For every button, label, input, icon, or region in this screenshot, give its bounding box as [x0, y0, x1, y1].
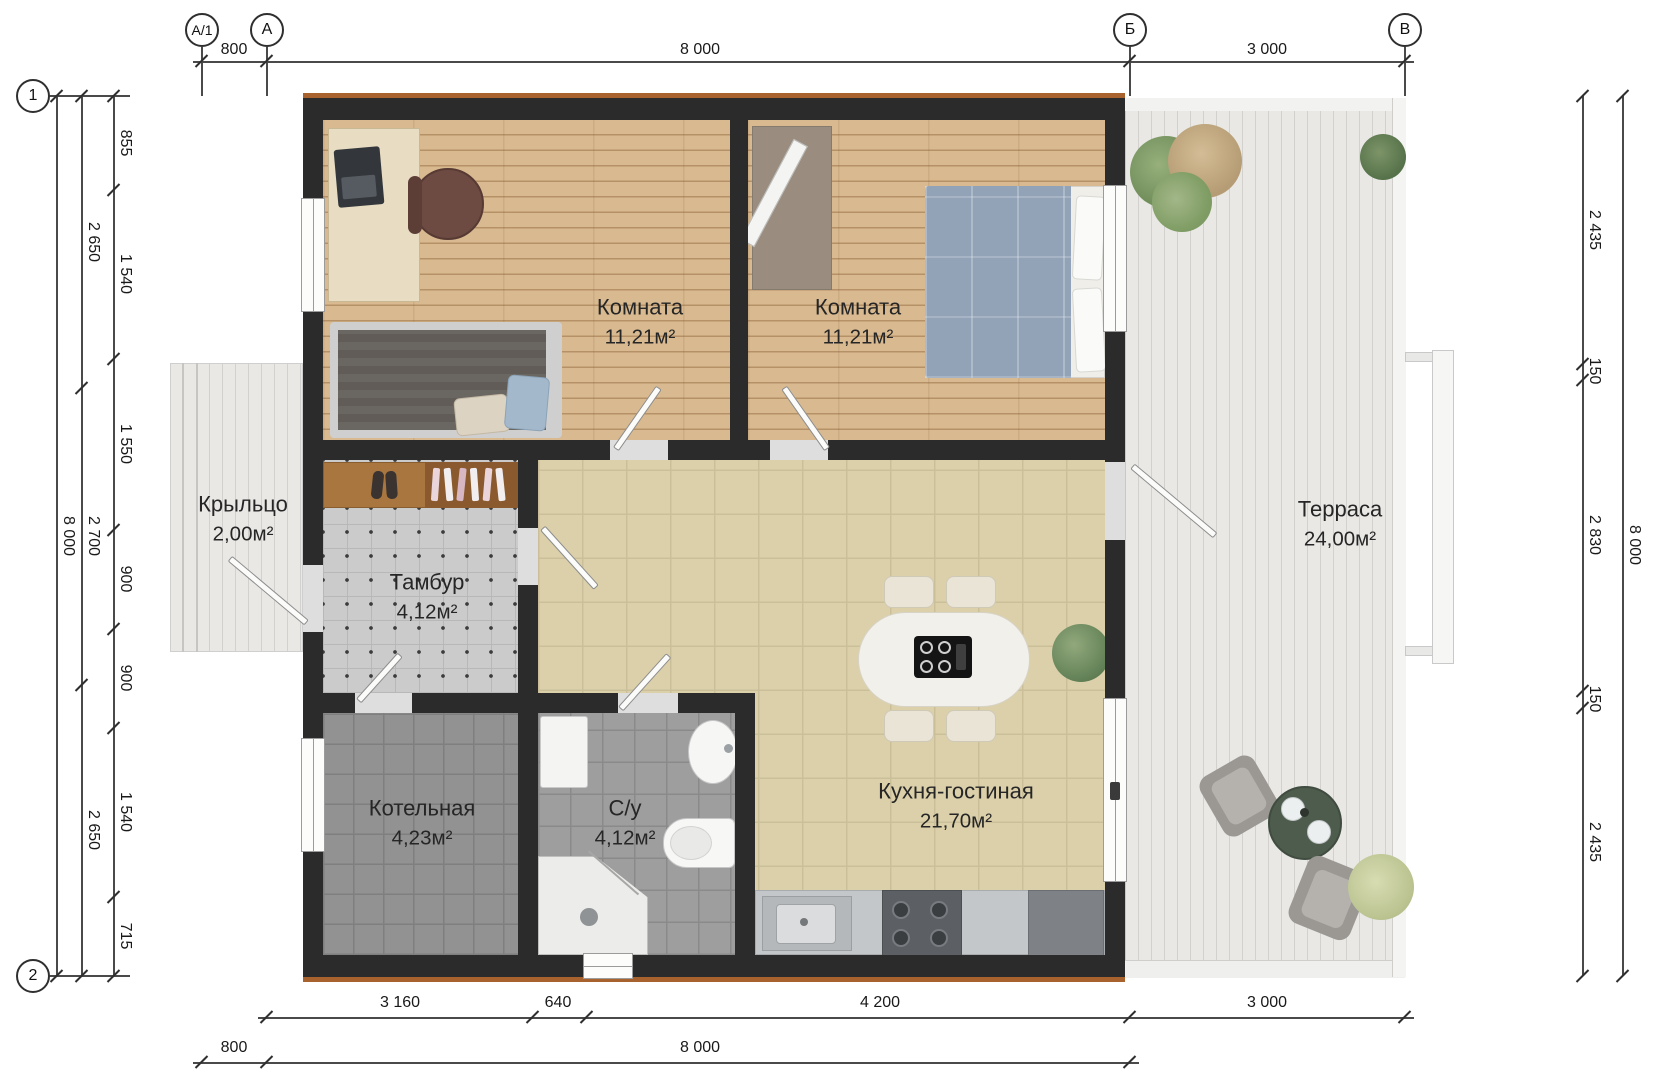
- terrace-railing: [1432, 350, 1454, 664]
- wall-exterior-right: [1105, 540, 1125, 698]
- dim-label: 1 540: [116, 792, 134, 832]
- room-label-kitchen: Кухня-гостиная 21,70м²: [878, 776, 1034, 835]
- plant-kitchen: [1052, 624, 1110, 682]
- dim-line-bottom-1: [258, 1017, 1414, 1019]
- dim-label: 2 700: [84, 516, 102, 556]
- wall-exterior-top: [303, 98, 1125, 120]
- axis-label: В: [1400, 21, 1411, 39]
- cooktop-controls: [956, 644, 966, 670]
- terrace-trim-bottom: [1125, 960, 1405, 978]
- dim-label: 800: [221, 1039, 248, 1057]
- counter-cabinet: [1028, 890, 1104, 957]
- window-room2: [1103, 185, 1127, 332]
- shower-head: [580, 908, 598, 926]
- dim-line-left-inner: [113, 96, 115, 976]
- dim-label: 4 200: [860, 994, 900, 1012]
- axis-label: А/1: [191, 22, 212, 38]
- dim-label: 640: [545, 994, 572, 1012]
- railing-connector: [1405, 352, 1434, 362]
- axis-line: [1129, 47, 1131, 96]
- room-label-room1: Комната 11,21м²: [597, 292, 683, 351]
- plant-terrace-large: [1152, 172, 1212, 232]
- dim-label: 8 000: [680, 1039, 720, 1057]
- axis-label: Б: [1125, 21, 1136, 39]
- dim-label: 1 540: [116, 254, 134, 294]
- room-name: Комната: [815, 292, 901, 323]
- dim-label: 2 650: [84, 810, 102, 850]
- axis-bubble-2: 2: [16, 959, 50, 993]
- axis-bubble-a: А: [250, 13, 284, 47]
- stove: [882, 890, 962, 957]
- wall-bedrooms-bottom: [323, 440, 610, 460]
- slider-handle-icon: [1110, 782, 1120, 800]
- axis-label: 2: [29, 967, 38, 985]
- room-label-porch: Крыльцо 2,00м²: [198, 489, 288, 548]
- room-label-terrace: Терраса 24,00м²: [1298, 494, 1382, 553]
- dim-line-bottom-2: [193, 1062, 1139, 1064]
- laptop-keyboard: [341, 175, 377, 200]
- plant-terrace-small: [1360, 134, 1406, 180]
- stove-burner: [892, 929, 910, 947]
- burner: [920, 641, 933, 654]
- room-area: 11,21м²: [815, 323, 901, 352]
- wall-bedroom-divider: [730, 120, 748, 440]
- wall-exterior-bottom: [633, 955, 1125, 977]
- dim-label: 2 435: [1585, 210, 1603, 250]
- room-area: 24,00м²: [1298, 525, 1382, 554]
- dim-line-left-outer: [56, 96, 58, 976]
- dim-label: 150: [1585, 686, 1603, 713]
- stove-burner: [930, 901, 948, 919]
- window-boiler: [301, 738, 325, 852]
- room-area: 4,12м²: [390, 598, 465, 627]
- dim-label: 3 160: [380, 994, 420, 1012]
- wall-tambour-right: [518, 585, 538, 693]
- wall-exterior-bottom: [303, 955, 583, 977]
- office-chair-back: [408, 176, 422, 234]
- dim-label: 2 830: [1585, 515, 1603, 555]
- room-name: С/у: [595, 793, 656, 824]
- bed-pillow: [1072, 287, 1106, 372]
- dim-label: 3 000: [1247, 41, 1287, 59]
- wall-tambour-right: [518, 460, 538, 528]
- room-name: Комната: [597, 292, 683, 323]
- dim-line-left-mid: [81, 96, 83, 976]
- dim-label: 900: [116, 566, 134, 593]
- room-area: 11,21м²: [597, 323, 683, 352]
- axis-line: [201, 47, 203, 96]
- dining-chair: [946, 576, 996, 608]
- dim-label: 1 550: [116, 424, 134, 464]
- axis-line: [50, 95, 130, 97]
- room-label-tambour: Тамбур 4,12м²: [390, 567, 465, 626]
- room-label-room2: Комната 11,21м²: [815, 292, 901, 351]
- table-plate: [1307, 820, 1331, 844]
- room-name: Терраса: [1298, 494, 1382, 525]
- room-area: 4,23м²: [369, 824, 476, 853]
- axis-bubble-a1: А/1: [185, 13, 219, 47]
- room-name: Крыльцо: [198, 489, 288, 520]
- dining-chair: [884, 576, 934, 608]
- dim-label: 800: [221, 41, 248, 59]
- wall-boiler-bath-divider: [518, 713, 538, 955]
- dim-label: 900: [116, 665, 134, 692]
- wall-bath-right: [735, 693, 755, 955]
- wall-exterior-left: [303, 632, 323, 738]
- window-bath: [583, 953, 633, 979]
- room-name: Кухня-гостиная: [878, 776, 1034, 807]
- railing-connector: [1405, 646, 1434, 656]
- dim-label: 8 000: [680, 41, 720, 59]
- dim-line-right-inner: [1582, 96, 1584, 976]
- room-area: 2,00м²: [198, 520, 288, 549]
- burner: [938, 641, 951, 654]
- terrace-trim-right: [1392, 98, 1406, 977]
- dim-label: 8 000: [59, 516, 77, 556]
- axis-label: 1: [29, 87, 38, 105]
- axis-line: [266, 47, 268, 96]
- axis-bubble-1: 1: [16, 79, 50, 113]
- burner: [920, 660, 933, 673]
- dim-label: 2 435: [1585, 822, 1603, 862]
- window-room1: [301, 198, 325, 312]
- axis-bubble-v: В: [1388, 13, 1422, 47]
- stove-burner: [930, 929, 948, 947]
- wall-utility-top: [412, 693, 618, 713]
- pillow-beige: [453, 393, 511, 436]
- porch-step-line: [182, 363, 184, 652]
- terrace-table: [1268, 786, 1342, 860]
- floor-plan: А/1 А Б В 1 2 800 8 000 3 000 8 000 2 65…: [0, 0, 1659, 1080]
- washing-machine: [540, 716, 588, 788]
- wall-exterior-left: [303, 98, 323, 198]
- siding-trim-bottom: [303, 977, 1125, 982]
- axis-line: [50, 975, 130, 977]
- wall-exterior-left: [303, 312, 323, 565]
- wall-bedrooms-bottom: [668, 440, 770, 460]
- shoes: [385, 471, 398, 500]
- axis-line: [1404, 47, 1406, 96]
- room-label-bath: С/у 4,12м²: [595, 793, 656, 852]
- room-name: Тамбур: [390, 567, 465, 598]
- dim-label: 3 000: [1247, 994, 1287, 1012]
- stove-burner: [892, 901, 910, 919]
- dining-chair: [946, 710, 996, 742]
- threshold-tambour-kitchen: [518, 528, 538, 585]
- wall-exterior-right: [1105, 332, 1125, 462]
- axis-bubble-b: Б: [1113, 13, 1147, 47]
- plant-terrace-bottom: [1348, 854, 1414, 920]
- burner: [938, 660, 951, 673]
- wall-exterior-right: [1105, 98, 1125, 185]
- room-area: 21,70м²: [878, 807, 1034, 836]
- wall-bedrooms-bottom: [828, 440, 1105, 460]
- sink-drain: [800, 918, 808, 926]
- dining-chair: [884, 710, 934, 742]
- wall-utility-top: [323, 693, 355, 713]
- faucet: [724, 744, 733, 753]
- dim-line-right-outer: [1622, 96, 1624, 976]
- axis-label: А: [262, 21, 273, 39]
- dim-label: 8 000: [1625, 525, 1643, 565]
- dim-label: 715: [116, 923, 134, 950]
- dim-label: 150: [1585, 358, 1603, 385]
- bed-pillow: [1072, 195, 1106, 280]
- room-area: 4,12м²: [595, 824, 656, 853]
- bed-blanket: [925, 186, 1071, 378]
- room-label-boiler: Котельная 4,23м²: [369, 793, 476, 852]
- threshold-terrace-door: [1105, 462, 1125, 540]
- terrace-trim-top: [1125, 98, 1405, 111]
- dim-label: 855: [116, 130, 134, 157]
- dim-label: 2 650: [84, 222, 102, 262]
- table-item: [1300, 808, 1309, 817]
- office-chair: [412, 168, 484, 240]
- toilet-bowl: [670, 826, 712, 860]
- room-name: Котельная: [369, 793, 476, 824]
- dim-line-top: [193, 61, 1414, 63]
- pillow-blue: [504, 374, 551, 431]
